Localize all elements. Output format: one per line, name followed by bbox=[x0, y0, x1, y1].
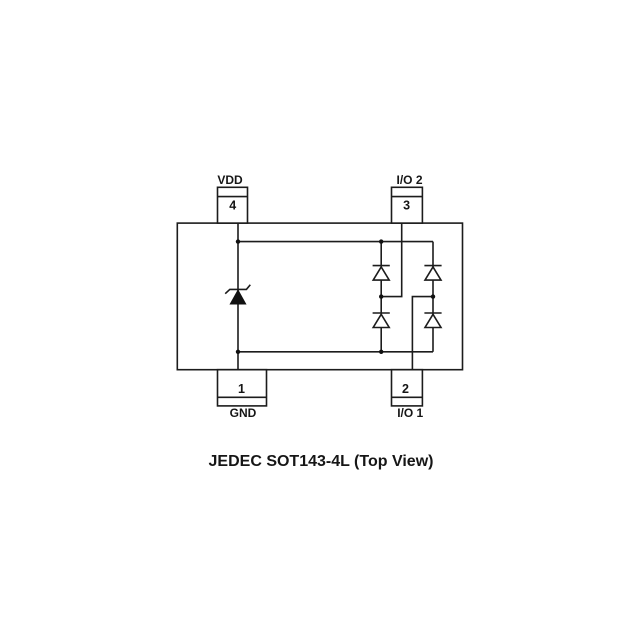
svg-text:4: 4 bbox=[229, 199, 236, 213]
svg-text:GND: GND bbox=[230, 406, 257, 420]
svg-text:I/O 2: I/O 2 bbox=[396, 173, 422, 187]
svg-text:I/O 1: I/O 1 bbox=[397, 406, 423, 420]
svg-text:2: 2 bbox=[402, 382, 409, 396]
svg-text:VDD: VDD bbox=[217, 173, 243, 187]
svg-text:JEDEC SOT143-4L (Top View): JEDEC SOT143-4L (Top View) bbox=[209, 453, 434, 470]
svg-text:3: 3 bbox=[403, 199, 410, 213]
svg-text:1: 1 bbox=[238, 382, 245, 396]
